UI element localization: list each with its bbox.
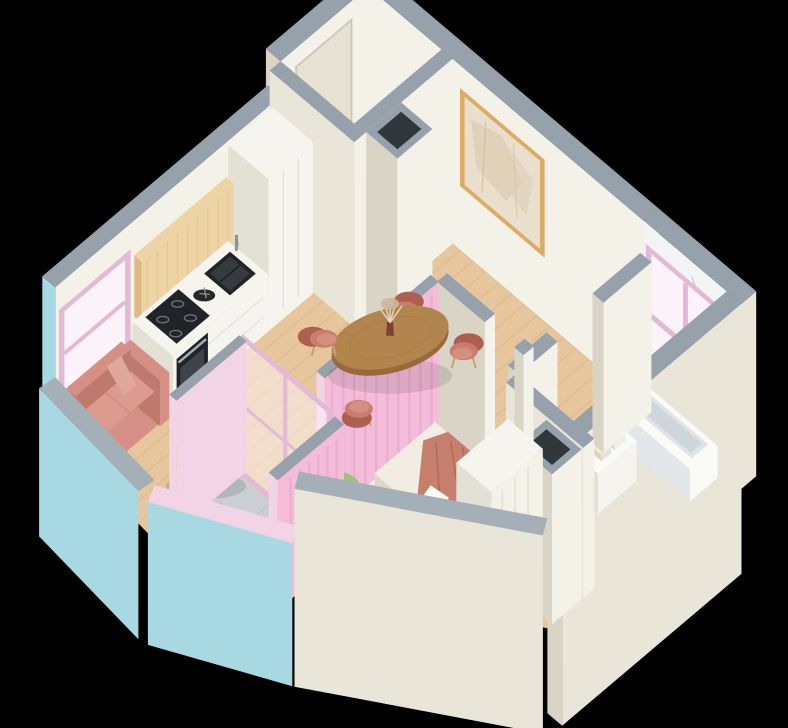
kitchen-backsplash-panel-left-face [134,255,141,323]
apartment-isometric-scene [0,0,788,728]
utensil [200,294,210,295]
render-viewport [0,0,788,728]
dining-chair-cushion [317,333,337,345]
kitchen-faucet [236,235,237,246]
dining-chair-cushion [349,401,369,413]
dining-chair-cushion [452,347,472,359]
vent-shaft-right-face [552,449,581,624]
table-vase [386,322,394,336]
bathroom-south-wall-right-face [583,439,594,598]
back-wall-marble-right-face [742,291,757,489]
sofa-armrest-right-face [160,373,169,427]
bathroom-partition-wall-left-face [593,293,604,452]
kitchen-serving-board [193,289,215,301]
entry-south-wall-right-face [354,133,365,327]
pampas-fluff [381,298,399,310]
